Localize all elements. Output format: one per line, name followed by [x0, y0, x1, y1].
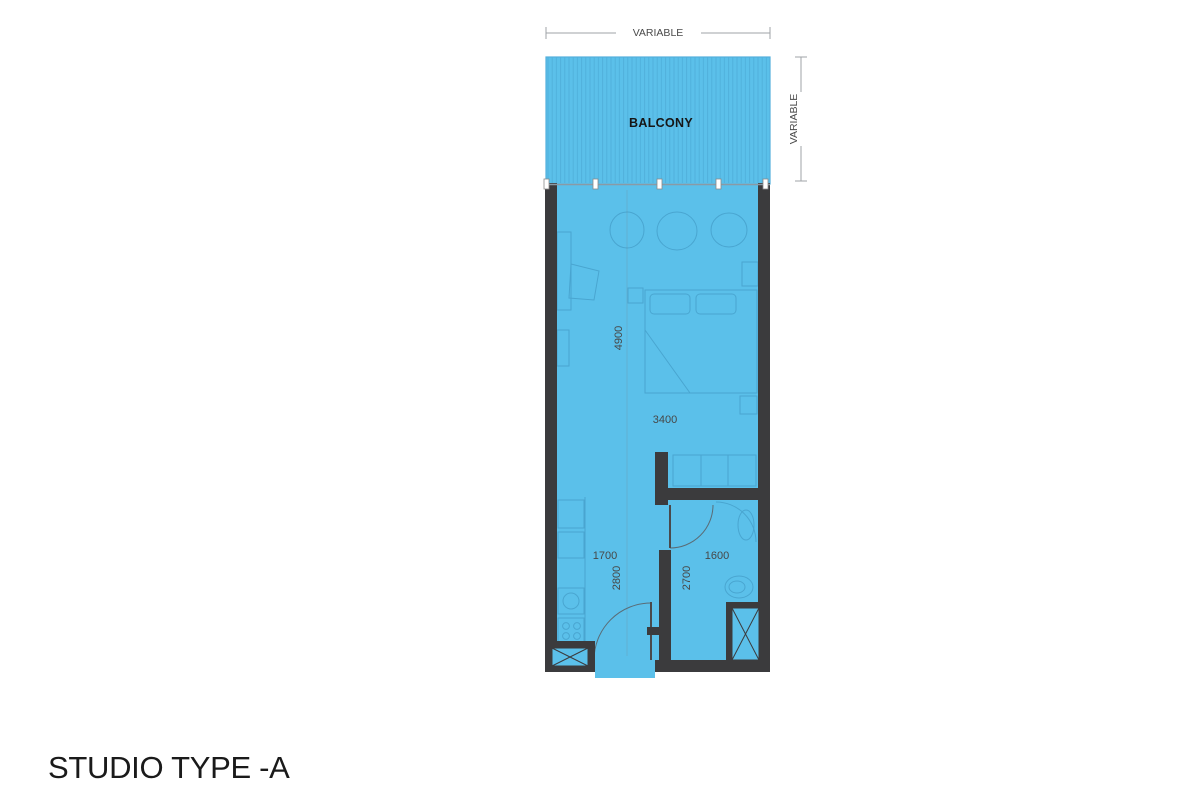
- page-title: STUDIO TYPE -A: [48, 750, 290, 786]
- wall-hall-vertical: [659, 550, 671, 672]
- floor-plan-page: BALCONY VARIABLE VARIABLE: [0, 0, 1200, 800]
- wall-left: [545, 183, 557, 672]
- mullion-4: [716, 179, 721, 189]
- dimension-right-label: VARIABLE: [788, 94, 800, 145]
- dim-bath-width: 1600: [705, 550, 729, 562]
- balcony: BALCONY: [546, 57, 770, 184]
- balcony-label: BALCONY: [629, 116, 693, 130]
- entry-recess-floor: [595, 660, 655, 678]
- mullion-2: [593, 179, 598, 189]
- dim-hall-width: 1700: [593, 550, 617, 562]
- dimension-top-label: VARIABLE: [633, 27, 684, 39]
- mullion-3: [657, 179, 662, 189]
- mullion-1: [544, 179, 549, 189]
- wall-jamb-stub: [647, 627, 659, 635]
- dim-bath-depth: 2700: [681, 566, 693, 590]
- wall-bath-horizontal: [655, 488, 770, 500]
- dim-hall-depth: 2800: [611, 566, 623, 590]
- floor-plan-canvas: BALCONY VARIABLE VARIABLE: [0, 0, 1200, 800]
- dim-living-depth: 4900: [613, 326, 625, 350]
- mullion-5: [763, 179, 768, 189]
- wall-right: [758, 183, 770, 672]
- dim-living-width: 3400: [653, 414, 677, 426]
